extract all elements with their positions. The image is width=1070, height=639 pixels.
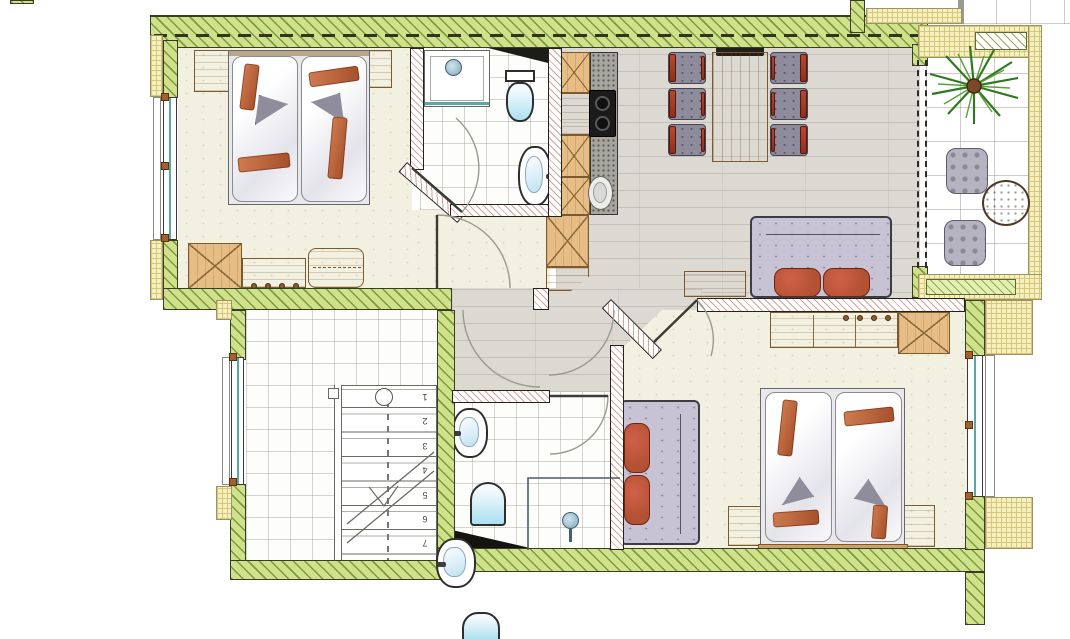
sofa-cushion [624, 423, 650, 473]
wall-right-lower [965, 496, 985, 550]
double-bed [760, 388, 905, 548]
wardrobe [898, 312, 950, 354]
balcony-bottom-insert [926, 279, 1016, 295]
chest-lid-line [313, 267, 361, 268]
double-bed [228, 50, 370, 205]
washbasin [436, 538, 476, 588]
sofa-back-line [680, 414, 681, 534]
sill-left-upper [150, 35, 163, 97]
wall-bathroom2-top [452, 390, 550, 403]
window-fitting [965, 421, 973, 429]
knob [871, 315, 877, 321]
toilet [505, 70, 535, 82]
palm-plant-icon [922, 42, 1022, 132]
sill-top-neighbor [866, 8, 962, 24]
dining-table [712, 52, 768, 162]
sideboard [684, 271, 746, 297]
chair-arm [701, 56, 705, 80]
window-stairwell [231, 357, 244, 485]
round-table [982, 180, 1030, 226]
blanket [308, 66, 360, 88]
sofa-back-line [766, 234, 880, 235]
stair-number: 1 [419, 392, 431, 402]
window-fitting [161, 162, 169, 170]
cabinet [558, 177, 590, 215]
chair-arm [771, 92, 775, 116]
window-fitting [161, 234, 169, 242]
mattress [301, 56, 367, 202]
chair-arm [800, 90, 807, 118]
sill-left-lower [150, 240, 163, 300]
blanket [843, 406, 894, 426]
shower [424, 50, 490, 107]
sofa [620, 400, 700, 545]
wall-stair-right [437, 310, 455, 560]
cabinet [558, 135, 590, 177]
cabinet [558, 52, 590, 93]
toilet-cropped [462, 612, 500, 639]
pillow [255, 95, 288, 125]
basin-bowl [525, 156, 544, 193]
window-fitting [229, 478, 237, 486]
dining-chair [770, 88, 808, 120]
chest [308, 248, 364, 288]
dining-chair [668, 52, 706, 84]
stair-number: 7 [419, 538, 431, 548]
mattress [765, 392, 832, 542]
knob [885, 315, 891, 321]
tap-icon [436, 562, 446, 567]
stair-number: 4 [419, 465, 431, 475]
sill-right-upper [985, 300, 1033, 355]
washbasin [452, 408, 488, 458]
knob [843, 315, 849, 321]
wall-bedroom1-bottom [163, 288, 452, 310]
dining-chair [770, 52, 808, 84]
sill-stair-lower [216, 486, 232, 520]
dresser [242, 258, 306, 288]
wall-pier-bottom-right [965, 572, 985, 625]
wall-bathroom2-right [610, 345, 624, 550]
upper-neighbor-tiles [962, 0, 1070, 24]
window-sill-outer [222, 357, 230, 485]
shower-head-icon [562, 512, 579, 529]
chair-arm [800, 54, 807, 82]
stair-number: 6 [419, 514, 431, 524]
pillow [854, 479, 886, 507]
balcony-wall-right [1028, 25, 1042, 278]
wall-bedroom2-top [697, 298, 965, 312]
bedroom1-entry-floor [410, 210, 550, 290]
nightstand [194, 50, 230, 92]
window-fitting [965, 351, 973, 359]
wall-right-upper [965, 300, 985, 356]
basin-bowl [459, 417, 479, 447]
stair-rail [334, 385, 342, 580]
shower-stem [569, 528, 572, 542]
window-sill-outer [153, 97, 161, 240]
wardrobe [188, 243, 242, 289]
blanket [871, 505, 888, 540]
wall-bathroom1-bottom [450, 204, 552, 217]
wall-bathroom1-left [410, 48, 424, 170]
chair-arm [669, 54, 676, 82]
wall-left-upper [163, 40, 178, 98]
blanket [777, 399, 798, 456]
wall-top-insulation-line [154, 34, 924, 37]
chair-arm [669, 90, 676, 118]
window-fitting [161, 93, 169, 101]
kitchen-lower-cabinet [546, 215, 589, 267]
kitchen-cabinets [558, 52, 590, 215]
sofa-cushion [624, 475, 650, 525]
blanket [239, 63, 259, 110]
window-sill-outer [985, 355, 995, 497]
stair-walk-line [387, 390, 389, 576]
chair-arm [701, 92, 705, 116]
floor-plan: 1 2 3 4 5 6 7 8 [0, 0, 1070, 639]
lounge-chair [946, 148, 988, 194]
wall-pier-hall [533, 288, 549, 310]
toilet [470, 482, 506, 526]
mattress [835, 392, 902, 542]
chair-arm [669, 126, 676, 154]
wall-top [150, 15, 928, 48]
newel-post [328, 388, 339, 399]
dining-chair [668, 124, 706, 156]
wall-stair-left-lower [230, 484, 246, 564]
chair-arm [701, 128, 705, 152]
sink-bowl [593, 182, 607, 203]
shower-drain-line [425, 102, 489, 105]
pillow [782, 477, 814, 505]
stair-number: 3 [419, 441, 431, 451]
window-fitting [229, 353, 237, 361]
blanket [773, 509, 820, 527]
shower-head-icon [445, 59, 462, 76]
kitchen-sink [588, 176, 613, 210]
wall-stair-bottom [230, 560, 446, 580]
stair-start-circle [375, 388, 393, 406]
wall-stub-top [850, 0, 865, 33]
corner-mark [10, 0, 34, 4]
stair-number: 2 [419, 416, 431, 426]
dining-chair [770, 124, 808, 156]
sofa-cushion [774, 268, 821, 297]
cabinet [558, 93, 590, 135]
wall-bottom-main [437, 548, 985, 572]
mattress [232, 56, 298, 202]
wall-bathroom1-right [548, 48, 562, 217]
toilet-bowl [506, 82, 534, 122]
drawer-line [813, 315, 814, 347]
window-fitting [965, 492, 973, 500]
burner [595, 96, 610, 111]
stair-number: 5 [419, 490, 431, 500]
knob [857, 315, 863, 321]
dining-chair [668, 88, 706, 120]
chair-arm [771, 56, 775, 80]
basin-bowl [443, 547, 465, 577]
washbasin [518, 146, 552, 206]
chair-arm [800, 126, 807, 154]
sofa [750, 216, 892, 298]
burner [595, 116, 610, 131]
desk-sideboard [770, 312, 898, 348]
lounge-chair [944, 220, 986, 266]
sofa-cushion [823, 268, 870, 297]
sill-right-lower [985, 497, 1033, 549]
blanket [237, 152, 290, 172]
cooktop [589, 90, 616, 137]
chair-arm [771, 128, 775, 152]
blanket [327, 116, 347, 179]
sill-stair-upper [216, 300, 232, 320]
drawer-line [855, 315, 856, 347]
